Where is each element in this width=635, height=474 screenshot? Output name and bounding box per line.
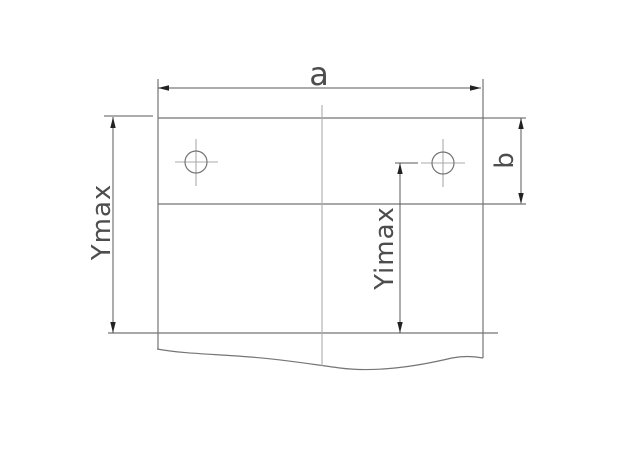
dimension-yimax: Yimax xyxy=(370,163,418,333)
dimension-b-label: b xyxy=(490,151,520,169)
dimension-a: a xyxy=(158,55,481,93)
arrowhead-up-icon xyxy=(397,163,402,174)
technical-drawing-canvas: a Ymax b Yimax xyxy=(0,0,635,474)
dimension-b: b xyxy=(483,118,526,204)
arrowhead-right-icon xyxy=(470,85,481,90)
arrowhead-down-icon xyxy=(110,322,115,333)
arrowhead-up-icon xyxy=(518,118,523,129)
dimension-ymax-label: Ymax xyxy=(87,184,117,262)
dimension-a-label: a xyxy=(309,55,329,93)
arrowhead-up-icon xyxy=(110,117,115,128)
centerlines xyxy=(175,105,465,366)
break-wavy-line xyxy=(157,349,483,370)
arrowhead-down-icon xyxy=(397,322,402,333)
dimension-drawing: a Ymax b Yimax xyxy=(0,0,635,474)
dimension-yimax-label: Yimax xyxy=(370,206,400,291)
part-outline xyxy=(108,79,526,370)
arrowhead-down-icon xyxy=(518,193,523,204)
arrowhead-left-icon xyxy=(158,85,169,90)
dimension-ymax: Ymax xyxy=(87,116,153,333)
